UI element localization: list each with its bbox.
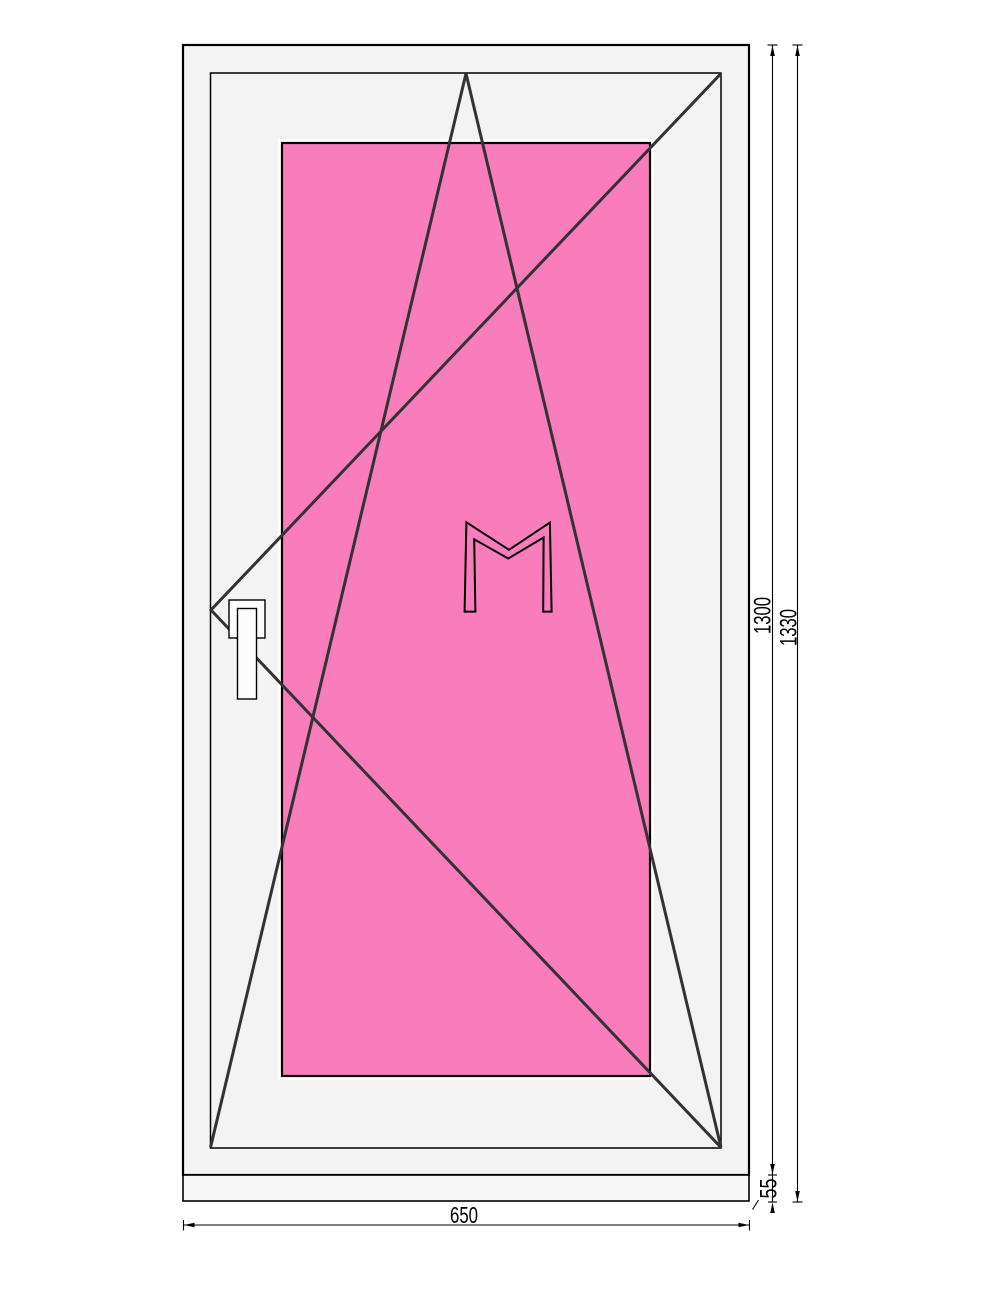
svg-text:55: 55 [756, 1179, 783, 1199]
svg-text:650: 650 [450, 1202, 478, 1228]
svg-text:1300: 1300 [750, 597, 777, 634]
svg-text:1330: 1330 [776, 609, 803, 646]
